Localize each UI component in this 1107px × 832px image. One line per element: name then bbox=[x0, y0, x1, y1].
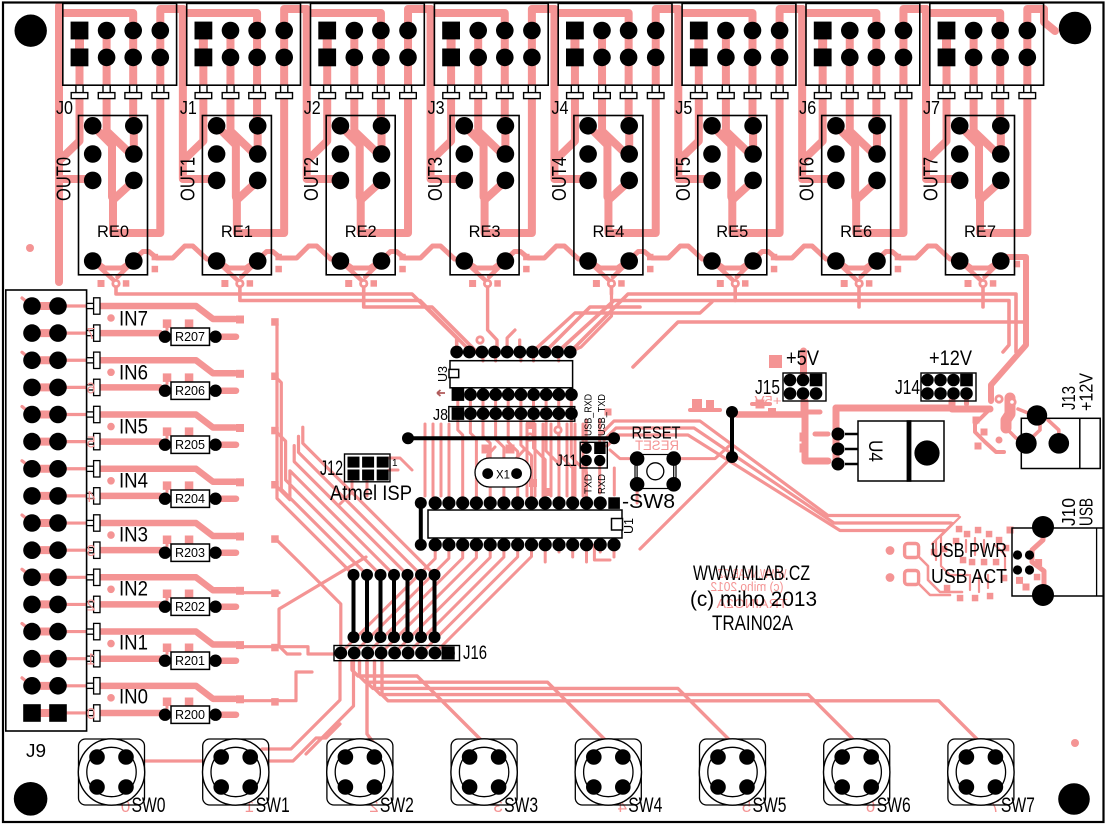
svg-text:J12: J12 bbox=[320, 457, 343, 480]
svg-text:J8: J8 bbox=[433, 407, 448, 424]
svg-text:R201: R201 bbox=[175, 653, 205, 668]
svg-text:USB: USB bbox=[1077, 498, 1097, 526]
svg-text:RXD: RXD bbox=[596, 474, 608, 494]
svg-text:J0: J0 bbox=[56, 98, 73, 118]
svg-text:SW3: SW3 bbox=[504, 793, 538, 817]
svg-text:7: 7 bbox=[86, 326, 95, 343]
svg-text:-SW8: -SW8 bbox=[622, 491, 675, 513]
svg-text:Atmel ISP: Atmel ISP bbox=[330, 482, 412, 505]
svg-text:IN7: IN7 bbox=[119, 307, 148, 331]
svg-text:R206: R206 bbox=[175, 383, 205, 398]
svg-text:IN6: IN6 bbox=[119, 361, 148, 385]
svg-text:J3: J3 bbox=[428, 98, 445, 118]
svg-text:U3: U3 bbox=[435, 366, 450, 382]
svg-text:R207: R207 bbox=[175, 329, 205, 344]
svg-text:3: 3 bbox=[86, 543, 95, 560]
svg-text:J1: J1 bbox=[180, 98, 197, 118]
svg-text:TRAIN02A: TRAIN02A bbox=[712, 612, 793, 635]
svg-text:5: 5 bbox=[86, 435, 95, 452]
svg-text:USB ACT: USB ACT bbox=[931, 566, 1007, 588]
svg-text:RE5: RE5 bbox=[716, 223, 748, 241]
svg-text:IN0: IN0 bbox=[119, 685, 148, 709]
svg-text:RE7: RE7 bbox=[964, 223, 996, 241]
svg-text:RE6: RE6 bbox=[840, 223, 872, 241]
svg-text:SW6: SW6 bbox=[877, 793, 911, 817]
svg-text:0: 0 bbox=[86, 706, 95, 723]
svg-text:OUT5: OUT5 bbox=[673, 157, 695, 201]
svg-text:J16: J16 bbox=[463, 643, 487, 664]
svg-text:OUT2: OUT2 bbox=[301, 157, 323, 201]
svg-text:J2: J2 bbox=[304, 98, 321, 118]
svg-text:SW7: SW7 bbox=[1001, 793, 1035, 817]
svg-text:2: 2 bbox=[86, 597, 95, 614]
svg-text:(c) miho 2013: (c) miho 2013 bbox=[690, 588, 817, 611]
svg-text:R202: R202 bbox=[175, 599, 205, 614]
svg-text:IN3: IN3 bbox=[119, 523, 148, 547]
svg-text:OUT7: OUT7 bbox=[921, 157, 943, 201]
svg-text:IN4: IN4 bbox=[119, 469, 148, 493]
svg-text:6: 6 bbox=[86, 380, 95, 397]
svg-text:U4: U4 bbox=[864, 440, 885, 462]
svg-text:USB_RXD: USB_RXD bbox=[583, 394, 595, 436]
svg-text:RE3: RE3 bbox=[469, 223, 501, 241]
svg-text:OUT3: OUT3 bbox=[425, 157, 447, 201]
svg-text:J7: J7 bbox=[923, 98, 940, 118]
svg-text:1: 1 bbox=[392, 458, 398, 469]
svg-text:RE1: RE1 bbox=[221, 223, 253, 241]
svg-text:+12V: +12V bbox=[929, 347, 972, 370]
svg-text:4: 4 bbox=[86, 489, 95, 506]
svg-text:USB PWR: USB PWR bbox=[931, 540, 1007, 562]
svg-text:J5: J5 bbox=[675, 98, 692, 118]
svg-text:SW0: SW0 bbox=[132, 793, 166, 817]
svg-text:SW2: SW2 bbox=[380, 793, 414, 817]
svg-text:R204: R204 bbox=[175, 491, 205, 506]
svg-text:OUT4: OUT4 bbox=[549, 157, 571, 201]
svg-text:J14: J14 bbox=[895, 377, 920, 399]
svg-text:OUT1: OUT1 bbox=[177, 157, 199, 201]
svg-text:RESET: RESET bbox=[632, 423, 681, 443]
svg-text:J9: J9 bbox=[26, 741, 46, 761]
svg-text:U1: U1 bbox=[621, 518, 636, 534]
svg-text:R200: R200 bbox=[175, 707, 205, 722]
svg-text:SW5: SW5 bbox=[753, 793, 787, 817]
svg-text:WWW.MLAB.CZ: WWW.MLAB.CZ bbox=[693, 562, 810, 585]
svg-text:OUT0: OUT0 bbox=[54, 157, 76, 201]
svg-text:TXD: TXD bbox=[583, 474, 595, 494]
svg-text:SW4: SW4 bbox=[628, 793, 662, 817]
svg-text:OUT6: OUT6 bbox=[797, 157, 819, 201]
svg-text:J15: J15 bbox=[755, 377, 780, 399]
svg-text:J4: J4 bbox=[551, 98, 568, 118]
svg-text:R203: R203 bbox=[175, 545, 205, 560]
svg-text:RE2: RE2 bbox=[345, 223, 377, 241]
svg-text:1: 1 bbox=[86, 652, 95, 669]
svg-text:+5V: +5V bbox=[786, 347, 819, 370]
svg-text:IN2: IN2 bbox=[119, 577, 148, 601]
svg-text:X1: X1 bbox=[496, 468, 510, 482]
svg-text:J6: J6 bbox=[799, 98, 816, 118]
svg-text:RE0: RE0 bbox=[97, 223, 129, 241]
svg-text:SW1: SW1 bbox=[256, 793, 290, 817]
svg-text:IN5: IN5 bbox=[119, 415, 148, 439]
svg-text:J11: J11 bbox=[556, 451, 577, 470]
svg-text:RE4: RE4 bbox=[592, 223, 624, 241]
svg-text:R205: R205 bbox=[175, 437, 205, 452]
svg-text:USB_TXD: USB_TXD bbox=[596, 394, 608, 436]
svg-text:+12V: +12V bbox=[1077, 373, 1097, 411]
svg-text:IN1: IN1 bbox=[119, 631, 148, 655]
